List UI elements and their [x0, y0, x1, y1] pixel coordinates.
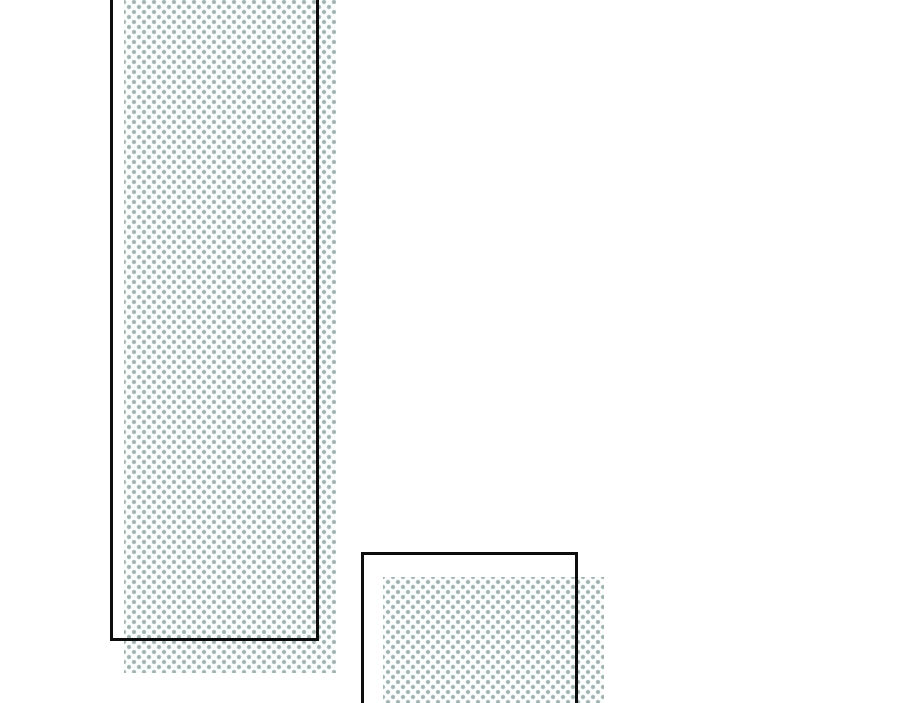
panel-1-outline: [110, 0, 319, 641]
comic-page: [0, 0, 900, 703]
panel-2-outline: [361, 552, 578, 703]
